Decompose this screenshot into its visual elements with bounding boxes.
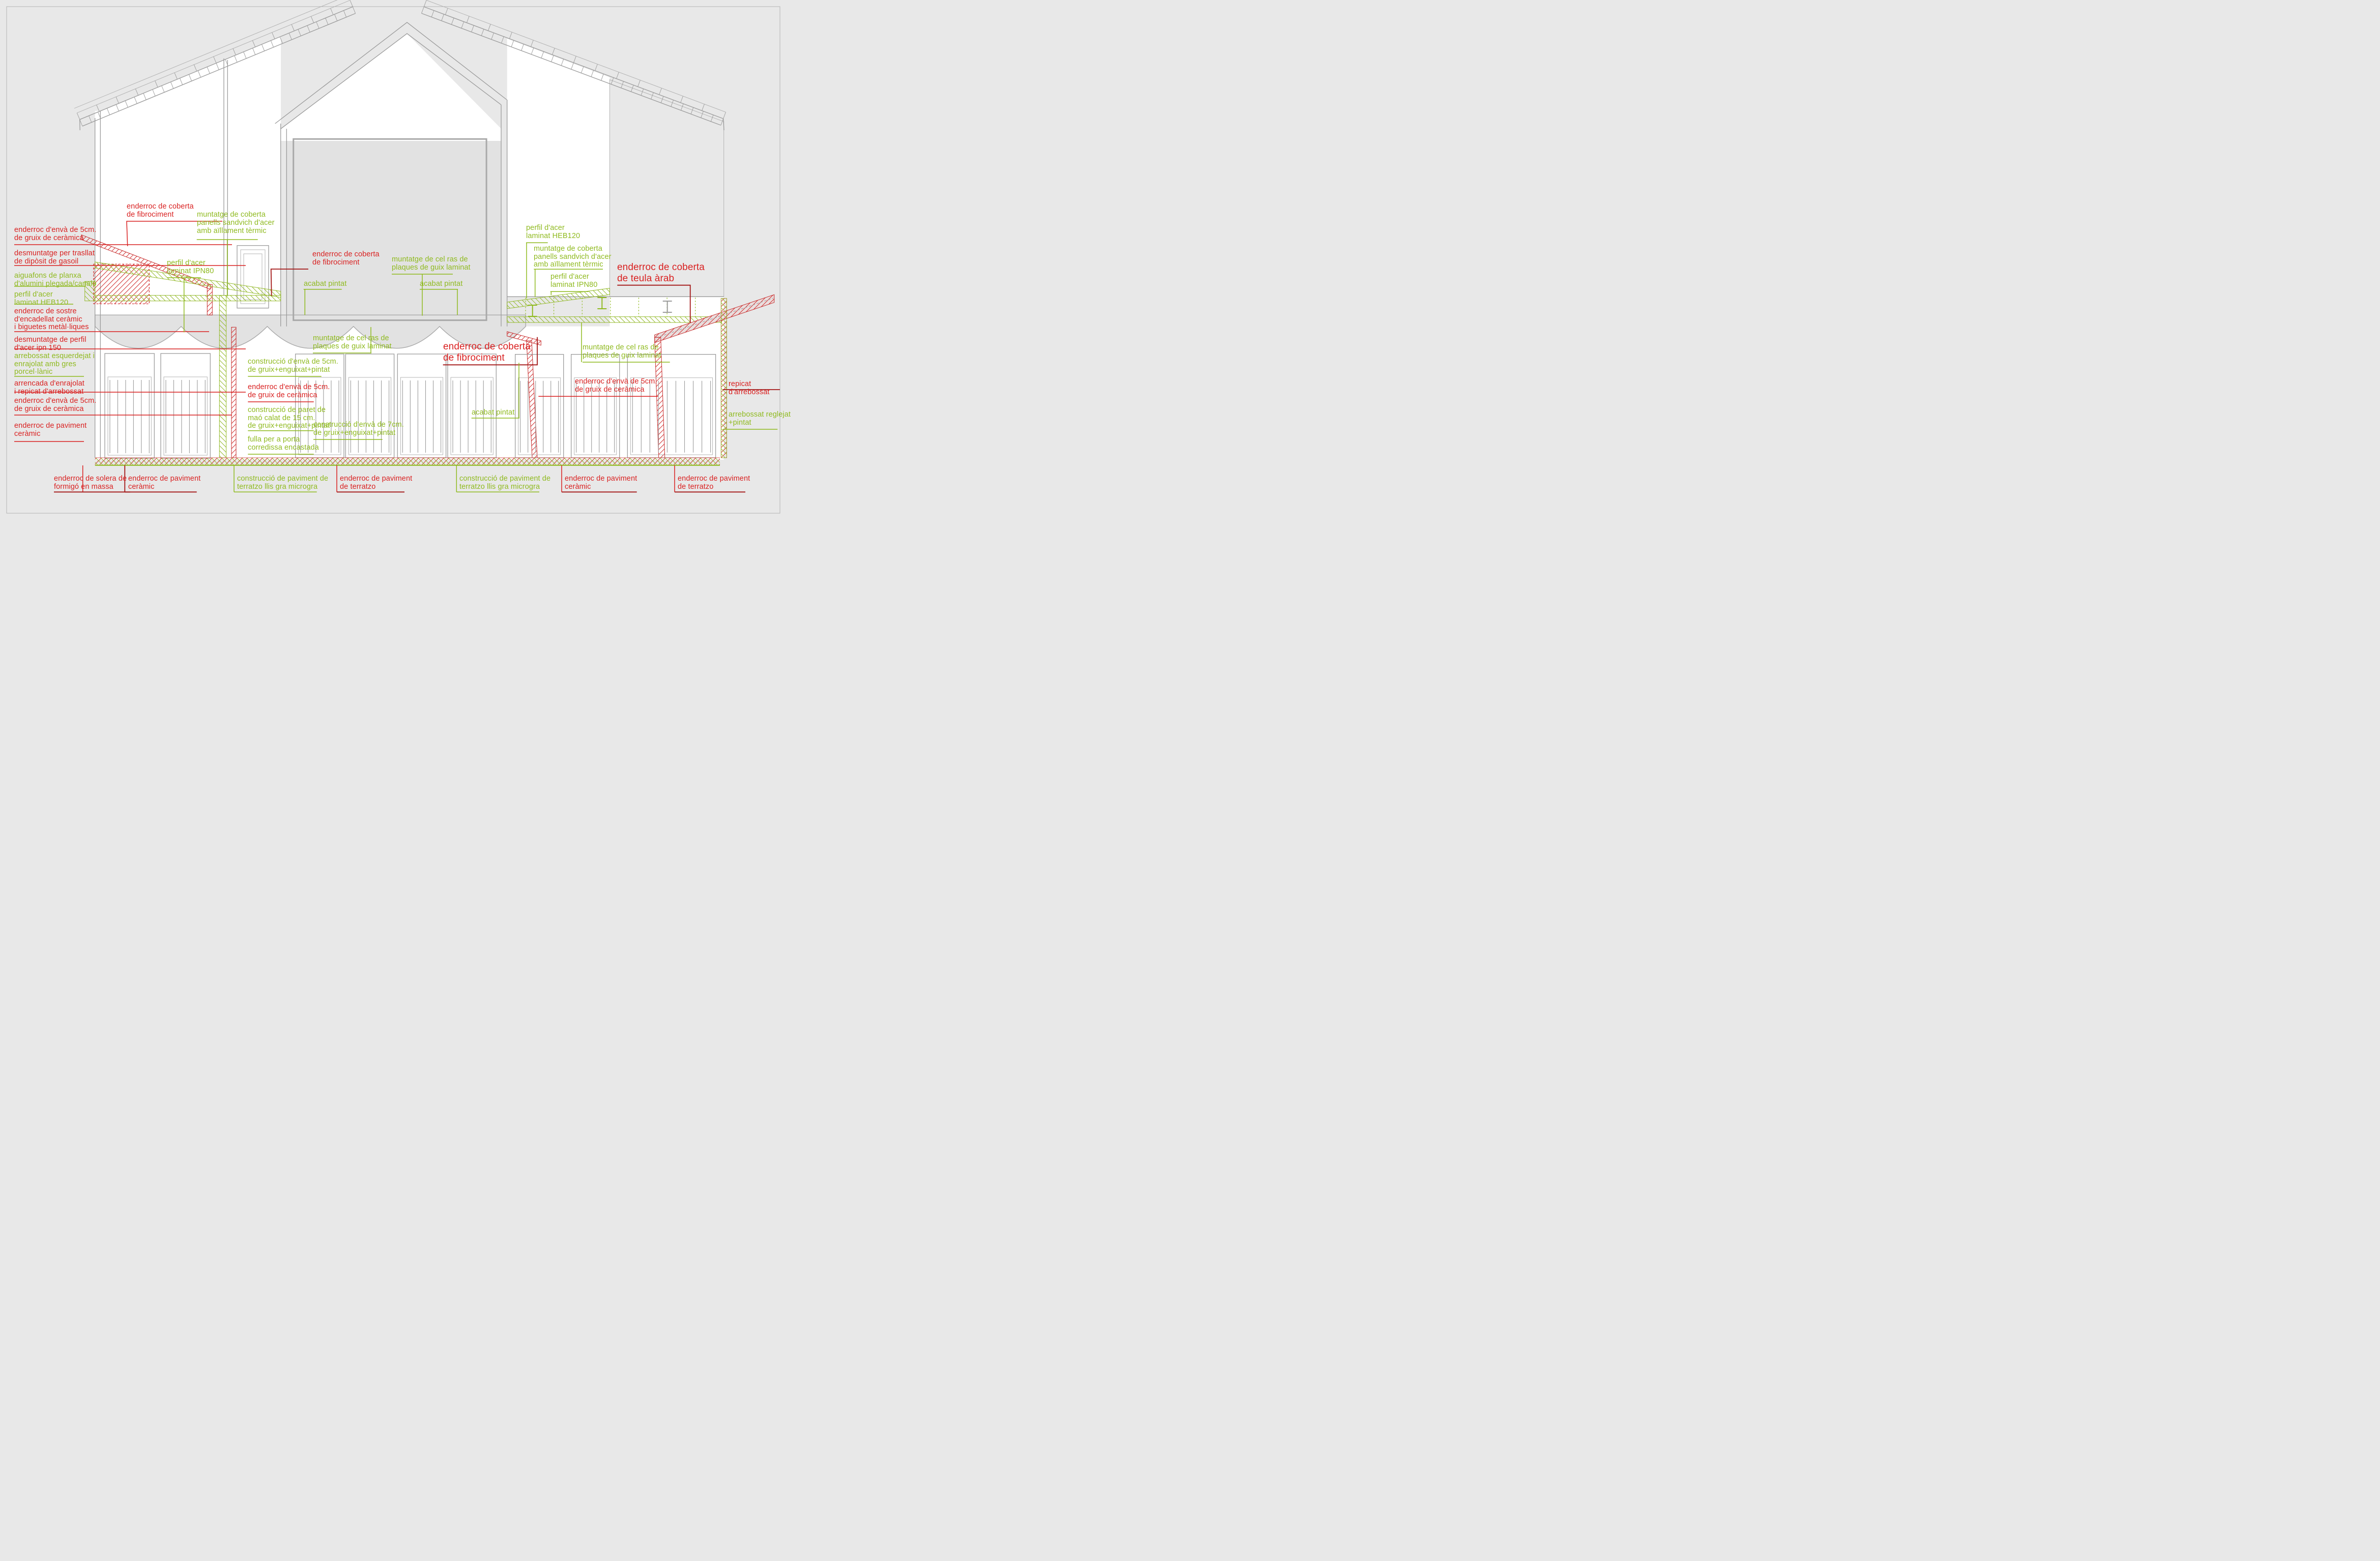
label-sandvich-top: muntatge de coberta panells sandvich d'a… [197, 211, 275, 235]
label-paret-mao: construcció de paret de maó calat de 15 … [248, 406, 330, 430]
label-heb120-right: perfil d'acer laminat HEB120 [526, 224, 580, 240]
label-sandvich-right: muntatge de coberta panells sandvich d'a… [534, 245, 612, 269]
label-paviment-b1: enderroc de paviment ceràmic [128, 475, 200, 491]
label-teula-arab: enderroc de coberta de teula àrab [617, 262, 705, 284]
label-acabat-2: acabat pintat [420, 280, 462, 288]
label-ipn150: desmuntatge de perfil d'acer ipn 150 [14, 336, 86, 352]
left-annex-ceiling-band [95, 296, 281, 301]
label-fibrociment-big: enderroc de coberta de fibrociment [443, 341, 531, 363]
label-repicat: repicat d'arrebossat [729, 380, 793, 396]
label-terratzo-end-2: enderroc de paviment de terratzo [678, 475, 750, 491]
label-arrebossat-gres: arrebossat esquerdejat i enrajolat amb g… [14, 352, 95, 376]
label-fibrociment-mid: enderroc de coberta de fibrociment [312, 250, 380, 267]
label-terratzo-1: construcció de paviment de terratzo llis… [237, 475, 328, 491]
floor-strip [95, 458, 720, 465]
label-arrencada: arrencada d'enrajolat i repicat d'arrebo… [14, 379, 84, 396]
label-terratzo-end-1: enderroc de paviment de terratzo [340, 475, 412, 491]
label-celras-left: muntatge de cel ras de plaques de guix l… [313, 334, 392, 350]
new-ceiling-band-right [507, 317, 722, 322]
label-aiguafons: aiguafons de planxa d'alumini plegada/ca… [14, 272, 97, 288]
label-paviment-ceramic-left: enderroc de paviment ceràmic [14, 422, 86, 438]
label-solera: enderroc de solera de formigó en massa [54, 475, 127, 491]
label-celras-right: muntatge de cel ras de plaques de guix l… [583, 343, 661, 360]
label-fulla-porta: fulla per a porta corredissa encastada [248, 435, 319, 452]
label-ipn80-right: perfil d'acer laminat IPN80 [550, 273, 597, 289]
label-heb120-left: perfil d'acer laminat HEB120 [14, 290, 68, 307]
label-celras-mid: muntatge de cel ras de plaques de guix l… [392, 255, 471, 272]
label-ipn80-top: perfil d'acer laminat IPN80 [167, 259, 214, 275]
drawing-canvas: enderroc d'envà de 5cm. de gruix de cerà… [0, 0, 793, 520]
right-facade-wall-strip [721, 299, 727, 458]
label-acabat-3: acabat pintat [472, 408, 514, 417]
label-paviment-b2: enderroc de paviment ceràmic [565, 475, 637, 491]
new-brick-wall-15cm [219, 296, 226, 458]
label-fibrociment-top: enderroc de coberta de fibrociment [127, 202, 194, 219]
label-enva-5cm-constr: construcció d'envà de 5cm. de gruix+engu… [248, 358, 338, 374]
label-enva-5cm-right: enderroc d'envà de 5cm. de gruix de cerà… [575, 377, 657, 394]
nave-wall-mass [286, 141, 501, 327]
label-enderroc-enva-1: enderroc d'envà de 5cm. de gruix de cerà… [14, 226, 96, 242]
label-enva-5cm-enderroc: enderroc d'envà de 5cm. de gruix de cerà… [248, 383, 330, 399]
label-enderroc-enva-2: enderroc d'envà de 5cm. de gruix de cerà… [14, 397, 96, 413]
label-terratzo-2: construcció de paviment de terratzo llis… [459, 475, 550, 491]
label-reglejat: arrebossat reglejat +pintat [729, 410, 791, 427]
label-enderroc-sostre: enderroc de sostre d'encadellat ceràmic … [14, 308, 89, 332]
label-acabat-1: acabat pintat [304, 280, 346, 288]
label-desmuntatge-diposit: desmuntatge per trasllat de dipòsit de g… [14, 249, 95, 266]
